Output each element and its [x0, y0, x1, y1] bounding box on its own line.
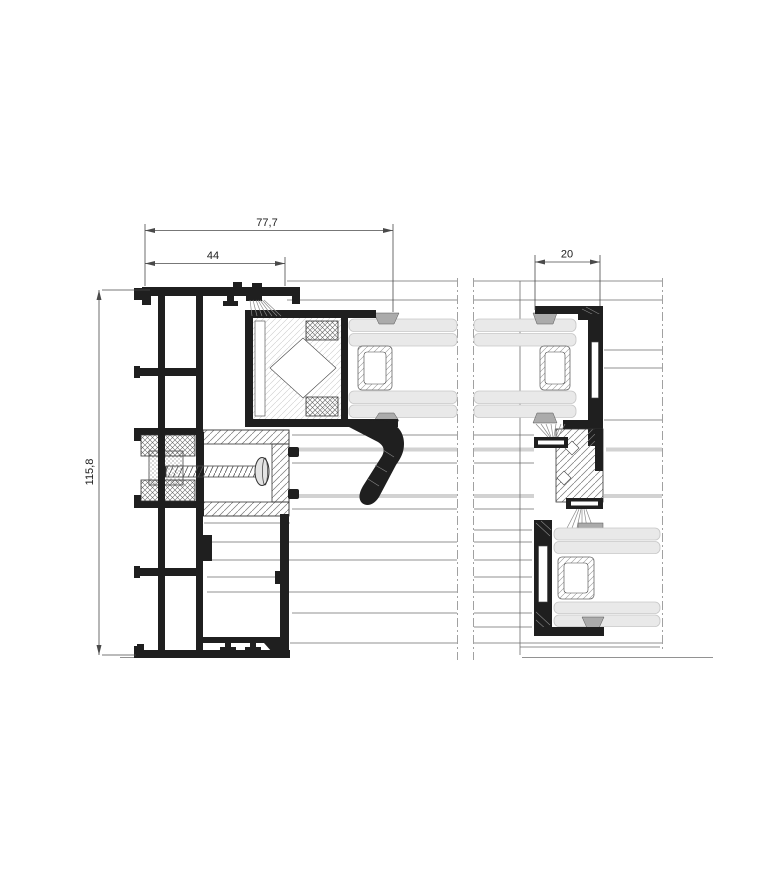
dimension-overall-height: 115,8 [84, 290, 150, 655]
technical-drawing-page: 77,7 44 20 115,8 [0, 0, 766, 875]
dimension-interlock-width: 20 [535, 249, 600, 311]
glazing-unit-top-left [349, 313, 457, 421]
dimension-frame-width: 44 [145, 250, 285, 286]
profile-section-drawing: 77,7 44 20 115,8 [0, 0, 766, 875]
dim-label-overall-width: 77,7 [256, 217, 277, 229]
interlock-profiles [534, 424, 603, 532]
dim-label-frame-width: 44 [207, 250, 219, 262]
glazing-unit-right-bottom [554, 528, 660, 628]
glazing-gasket [533, 313, 557, 324]
interlock-hook [349, 419, 404, 505]
dim-label-interlock-width: 20 [561, 249, 573, 261]
dim-label-overall-height: 115,8 [84, 459, 96, 486]
glazing-unit-right-top [474, 313, 576, 423]
dimension-overall-width: 77,7 [145, 217, 393, 312]
glazing-gasket [533, 413, 557, 423]
